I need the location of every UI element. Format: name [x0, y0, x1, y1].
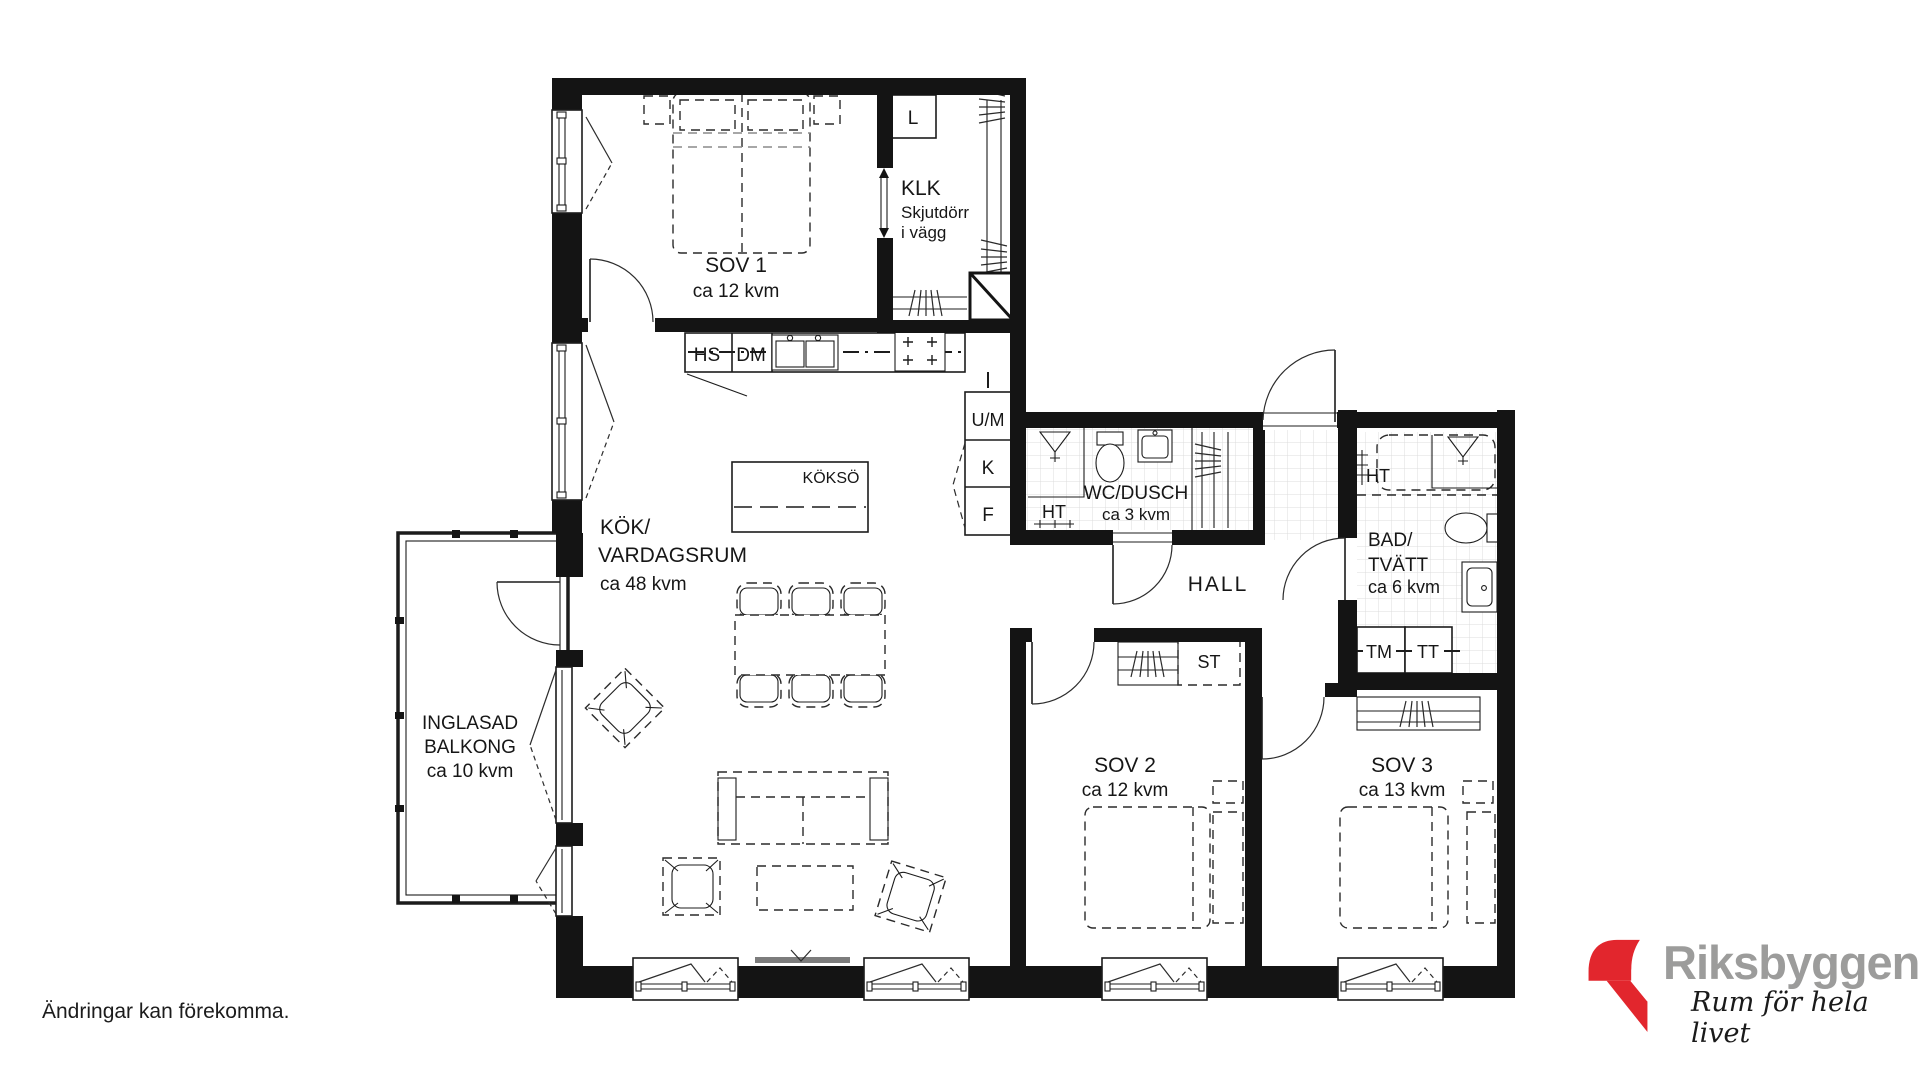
window-kitchen — [552, 343, 614, 500]
kitchen-sink — [772, 335, 838, 370]
label-klk-name: KLK — [901, 177, 941, 200]
label-kitchen-island: KÖKSÖ — [803, 469, 860, 487]
riksbyggen-ribbon-icon — [1583, 938, 1653, 1033]
label-balcony-area: ca 10 kvm — [427, 761, 514, 782]
wc-basin — [1138, 430, 1172, 462]
label-bath-area: ca 6 kvm — [1368, 577, 1440, 597]
door-sov1 — [588, 259, 655, 332]
label-towel-dryer-bath: HT — [1366, 466, 1390, 486]
door-wc — [1113, 530, 1172, 604]
coffee-table — [757, 866, 853, 910]
tv-bench — [755, 950, 850, 963]
floor-plan: SOV 1 ca 12 kvm L KLK Skjutdörr i vägg H… — [0, 0, 1920, 1080]
label-living-area: ca 48 kvm — [600, 574, 687, 595]
armchair-left — [663, 858, 720, 915]
label-sov3-name: SOV 3 — [1371, 754, 1433, 777]
label-bath-line1: BAD/ — [1368, 530, 1413, 551]
label-sov1-name: SOV 1 — [705, 254, 767, 277]
label-tall-cabinet: HS — [694, 345, 720, 366]
label-tumble-dryer: TT — [1417, 642, 1439, 662]
label-sov1-area: ca 12 kvm — [693, 281, 780, 302]
label-dishwasher: DM — [736, 345, 766, 366]
bath-basin — [1462, 562, 1497, 612]
label-balcony-line2: BALKONG — [424, 737, 516, 758]
dining-table — [735, 615, 885, 675]
door-sliding-klk — [877, 168, 893, 238]
label-sov2-name: SOV 2 — [1094, 754, 1156, 777]
door-bath — [1283, 538, 1357, 600]
sov3-furniture — [1340, 697, 1495, 928]
label-wc-area: ca 3 kvm — [1102, 505, 1170, 524]
sov3-wardrobe — [1357, 697, 1480, 730]
label-towel-dryer-wc: HT — [1042, 502, 1066, 522]
bath-toilet — [1445, 513, 1498, 543]
sov1-bed — [644, 93, 840, 253]
label-hall: HALL — [1188, 573, 1249, 596]
label-fridge: K — [982, 458, 995, 479]
floorplan-page: SOV 1 ca 12 kvm L KLK Skjutdörr i vägg H… — [0, 0, 1920, 1080]
window-living-1 — [633, 958, 738, 1000]
label-linen-cabinet: L — [908, 108, 919, 129]
door-entrance — [1263, 350, 1337, 430]
label-bath-line2: TVÄTT — [1368, 555, 1429, 576]
window-living-2 — [864, 958, 969, 1000]
label-living-line1: KÖK/ — [600, 516, 650, 539]
label-klk-note1: Skjutdörr — [901, 203, 969, 222]
window-sov3 — [1338, 958, 1443, 1000]
dining-set — [735, 583, 885, 707]
armchair-balcony — [585, 668, 664, 747]
label-wc-name: WC/DUSCH — [1084, 483, 1189, 504]
label-cleaning-closet: ST — [1197, 652, 1220, 672]
disclaimer-text: Ändringar kan förekomma. — [42, 1000, 289, 1024]
label-oven-micro: U/M — [972, 410, 1005, 430]
wc-toilet — [1096, 432, 1124, 482]
brand-tagline: Rum för hela livet — [1691, 987, 1919, 1049]
brand-name: Riksbyggen — [1663, 938, 1919, 987]
label-sov3-area: ca 13 kvm — [1359, 780, 1446, 801]
stove — [895, 331, 945, 371]
shaft — [970, 273, 1013, 320]
sofa — [718, 772, 888, 844]
label-sov2-area: ca 12 kvm — [1082, 780, 1169, 801]
label-klk-note2: i vägg — [901, 223, 946, 242]
riksbyggen-logo: Riksbyggen Rum för hela livet — [1583, 938, 1893, 1049]
window-sov1 — [552, 110, 612, 213]
door-sov2 — [1032, 628, 1094, 704]
armchair-right — [875, 861, 946, 932]
label-washing-machine: TM — [1366, 642, 1392, 662]
door-sov3 — [1262, 683, 1325, 759]
label-living-line2: VARDAGSRUM — [598, 544, 747, 567]
label-balcony-line1: INGLASAD — [422, 713, 518, 734]
label-freezer: F — [982, 505, 994, 526]
sov2-wardrobe — [1118, 642, 1178, 685]
window-sov2 — [1102, 958, 1207, 1000]
